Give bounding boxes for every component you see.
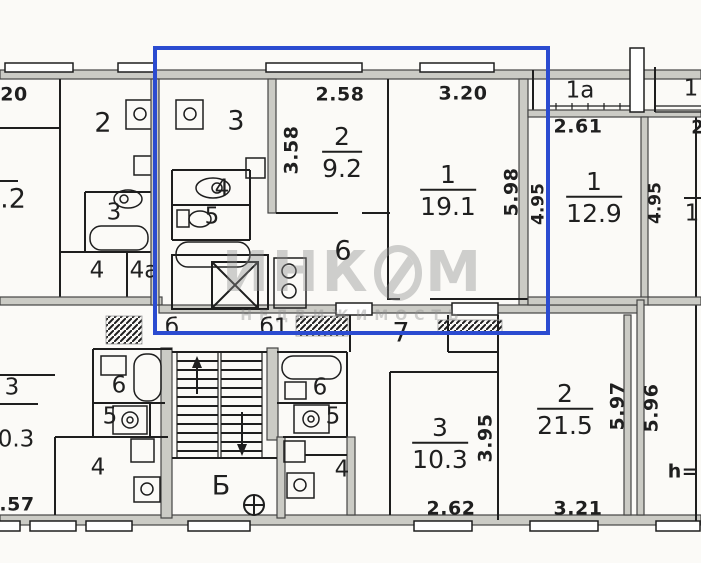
- right-corner-label: 1: [684, 78, 699, 101]
- right-edge-fraction-line: [684, 197, 701, 199]
- right-room1-number: 1: [566, 168, 622, 198]
- right-dim-depth: 4.95: [648, 182, 665, 224]
- bl-room3-fraction-line: [0, 403, 38, 405]
- br-room2-area: 21.5: [537, 410, 593, 441]
- dim-br-room2-depth: 5.97: [609, 382, 628, 431]
- stair-hall-label: Б: [212, 473, 231, 500]
- bl-room4-label: 4: [91, 457, 106, 480]
- dim-br-room2-width: 3.21: [554, 500, 603, 519]
- left-area-fraction-line: [0, 180, 18, 182]
- br-room2-label: 2 21.5: [537, 380, 593, 441]
- left-area-partial-label: .2: [0, 186, 26, 213]
- dim-br-room3-depth: 3.95: [477, 414, 496, 463]
- fr-dim-depth: 5.96: [643, 384, 662, 433]
- br-room6-label: 6: [313, 377, 328, 400]
- dim-loggia-width: 2.61: [554, 118, 603, 137]
- right-room1-area: 12.9: [566, 198, 622, 229]
- right-edge-dim-partial: 2: [691, 119, 701, 138]
- dim-top-left-partial: 20: [0, 86, 27, 105]
- br-room3-label: 3 10.3: [412, 414, 468, 475]
- left-room4-label: 4: [90, 260, 105, 283]
- br-room3-number: 3: [412, 414, 468, 444]
- bl-room3-number: 3: [5, 377, 20, 400]
- left-room3-label: 3: [107, 202, 122, 225]
- bl-dim-bottom-partial: .57: [0, 496, 35, 515]
- right-room1-label: 1 12.9: [566, 168, 622, 229]
- stair-steps: [177, 361, 262, 451]
- bl-room6-label: 6: [112, 375, 127, 398]
- br-room5-label: 5: [326, 406, 341, 429]
- floor-plan: ИНК М НЕДВИЖИМОСТЬ 20 2 .2 3 4 4а 2.58 3…: [0, 0, 701, 563]
- right-loggia-label: 1а: [566, 80, 595, 103]
- fr-height-label-partial: h=: [668, 463, 698, 482]
- selected-apartment-highlight: [153, 46, 550, 335]
- right-edge-room-partial: 1: [685, 203, 700, 226]
- bl-room5-label: 5: [103, 406, 118, 429]
- elevator-hall-vent-icon: [244, 495, 264, 515]
- bm-room4-label: 4: [335, 459, 350, 482]
- left-room2-label: 2: [94, 110, 111, 137]
- bl-room3-area-partial: 0.3: [0, 429, 34, 452]
- br-room3-area: 10.3: [412, 444, 468, 475]
- dim-br-room3-width: 2.62: [427, 500, 476, 519]
- br-room2-number: 2: [537, 380, 593, 410]
